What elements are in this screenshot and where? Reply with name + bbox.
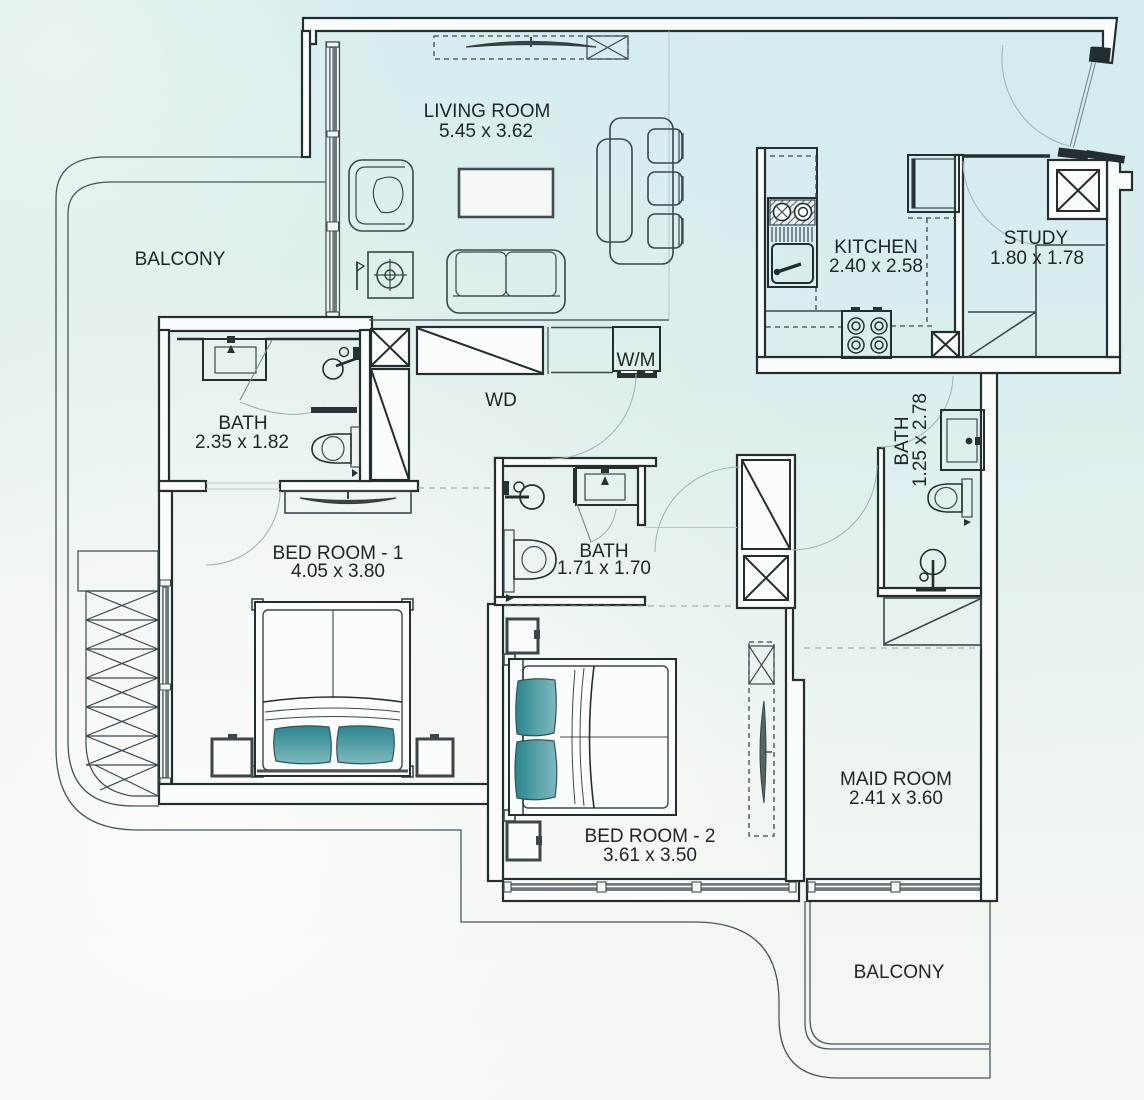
svg-text:W/M: W/M xyxy=(616,350,655,371)
svg-text:2.41 x 3.60: 2.41 x 3.60 xyxy=(849,788,943,809)
svg-text:KITCHEN: KITCHEN xyxy=(834,237,917,258)
svg-text:2.35 x 1.82: 2.35 x 1.82 xyxy=(195,432,289,453)
svg-text:1.80 x 1.78: 1.80 x 1.78 xyxy=(990,248,1084,269)
svg-text:LIVING ROOM: LIVING ROOM xyxy=(424,101,551,122)
svg-text:BATH: BATH xyxy=(218,413,267,434)
svg-text:3.61 x 3.50: 3.61 x 3.50 xyxy=(603,845,697,866)
svg-text:BALCONY: BALCONY xyxy=(854,962,945,983)
svg-text:1.71 x 1.70: 1.71 x 1.70 xyxy=(557,558,651,579)
svg-text:5.45 x 3.62: 5.45 x 3.62 xyxy=(439,121,533,142)
svg-text:BALCONY: BALCONY xyxy=(135,249,226,270)
svg-text:2.40 x 2.58: 2.40 x 2.58 xyxy=(829,256,923,277)
svg-text:STUDY: STUDY xyxy=(1004,228,1069,249)
svg-text:1.25 x 2.78: 1.25 x 2.78 xyxy=(910,393,931,487)
svg-text:BED ROOM - 2: BED ROOM - 2 xyxy=(585,826,716,847)
svg-text:WD: WD xyxy=(485,390,517,411)
svg-text:4.05 x 3.80: 4.05 x 3.80 xyxy=(291,561,385,582)
svg-text:MAID ROOM: MAID ROOM xyxy=(840,769,952,790)
